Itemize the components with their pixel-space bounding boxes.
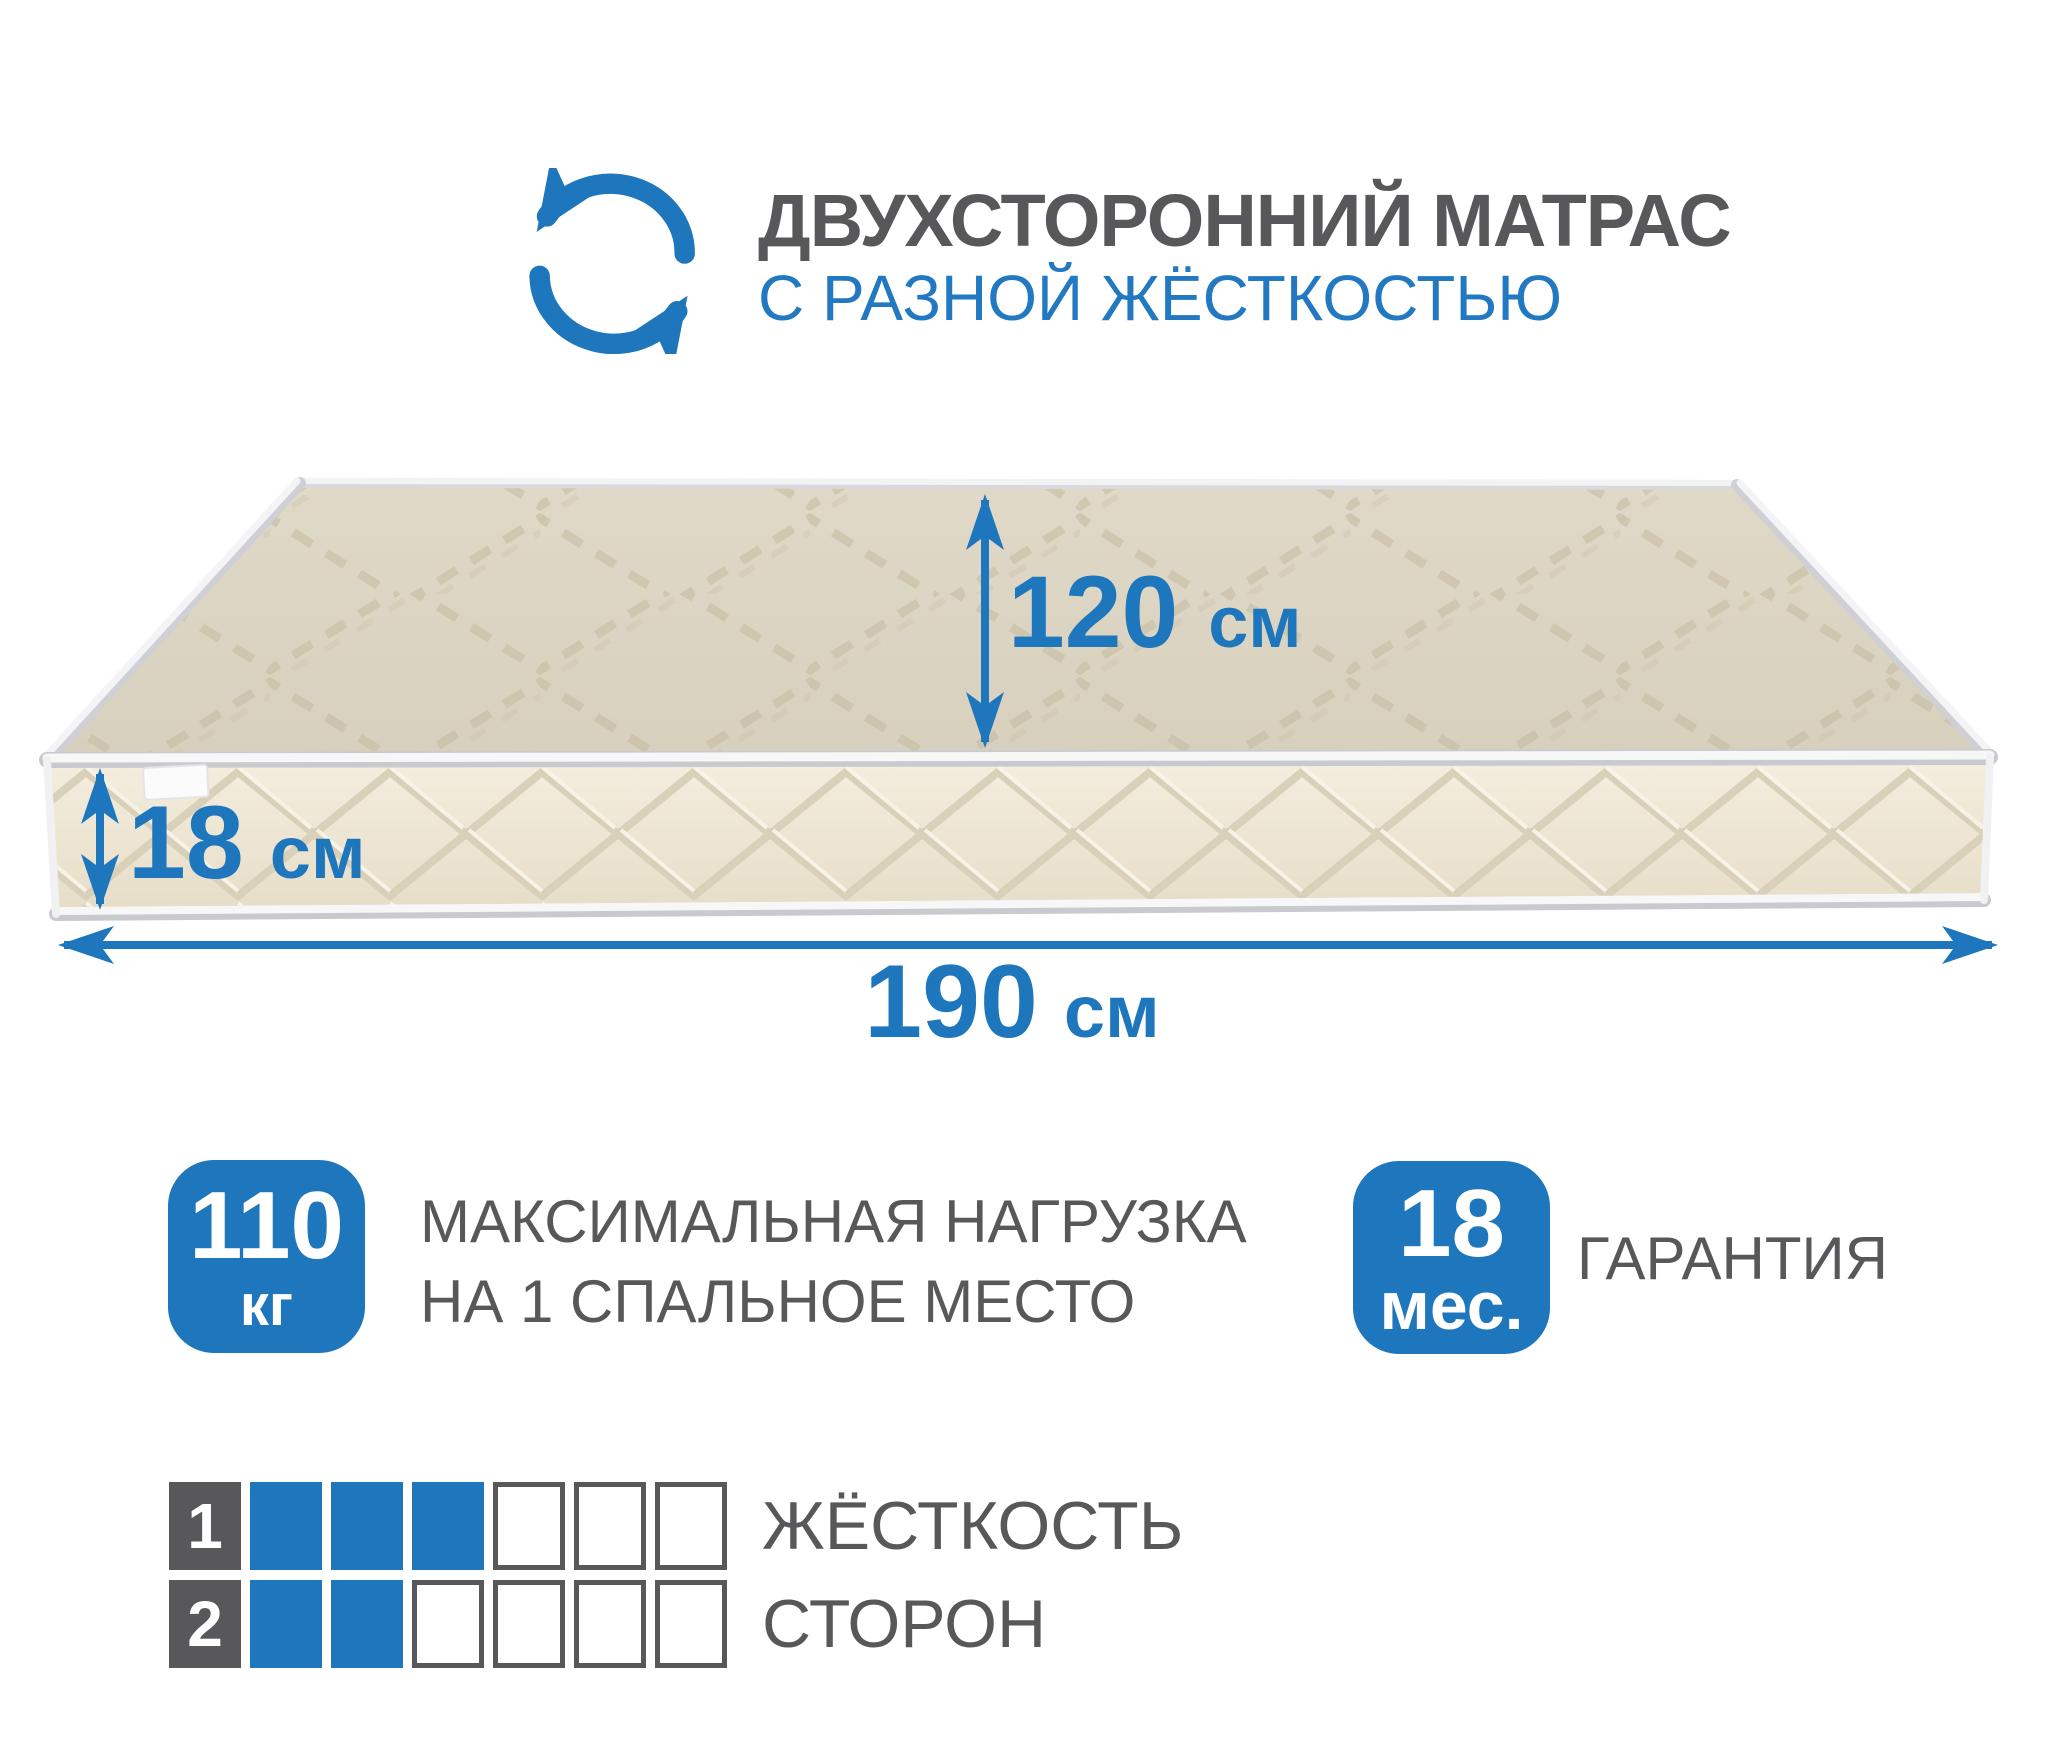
rotate-arrows-icon — [488, 168, 740, 354]
firmness-cell-empty — [493, 1580, 565, 1668]
max-load-value: 110 — [189, 1178, 344, 1274]
header-text: ДВУХСТОРОННИЙ МАТРАС С РАЗНОЙ ЖЁСТКОСТЬЮ — [758, 168, 1731, 334]
firmness-cell-empty — [412, 1580, 484, 1668]
firmness-caption-line2: СТОРОН — [762, 1585, 1046, 1663]
firmness-cell-empty — [493, 1482, 565, 1570]
firmness-row-1-cells — [250, 1482, 727, 1570]
page-title: ДВУХСТОРОННИЙ МАТРАС — [758, 180, 1731, 262]
header: ДВУХСТОРОННИЙ МАТРАС С РАЗНОЙ ЖЁСТКОСТЬЮ — [488, 168, 1731, 354]
warranty-value: 18 — [1398, 1176, 1505, 1272]
firmness-cell-empty — [574, 1482, 646, 1570]
dimension-length: 190см — [64, 944, 1992, 1060]
warranty-badge: 18 мес. — [1353, 1161, 1550, 1354]
mattress-figure: 120см 18см 190см — [0, 430, 2048, 1090]
firmness-cell-empty — [574, 1580, 646, 1668]
firmness-cell-empty — [655, 1482, 727, 1570]
length-label: 190см — [864, 944, 1159, 1060]
firmness-row-2-cells — [250, 1580, 727, 1668]
warranty-caption: ГАРАНТИЯ — [1577, 1226, 1888, 1292]
firmness-row-2-number: 2 — [169, 1580, 241, 1668]
max-load-caption-line1: МАКСИМАЛЬНАЯ НАГРУЗКА — [420, 1182, 1247, 1262]
warranty-unit: мес. — [1380, 1272, 1524, 1340]
firmness-cell-filled — [331, 1482, 403, 1570]
firmness-cell-filled — [412, 1482, 484, 1570]
firmness-scale: 1 ЖЁСТКОСТЬ 2 СТОРОН — [169, 1482, 1183, 1678]
rotate-arc-top — [547, 184, 685, 254]
firmness-row-2: 2 СТОРОН — [169, 1580, 1183, 1668]
firmness-cell-filled — [250, 1580, 322, 1668]
firmness-row-1: 1 ЖЁСТКОСТЬ — [169, 1482, 1183, 1570]
rotate-arc-bottom — [540, 276, 678, 344]
firmness-cell-filled — [250, 1482, 322, 1570]
firmness-row-1-number: 1 — [169, 1482, 241, 1570]
max-load-unit: кг — [240, 1276, 293, 1336]
infographic-page: ДВУХСТОРОННИЙ МАТРАС С РАЗНОЙ ЖЁСТКОСТЬЮ — [0, 0, 2048, 1757]
firmness-caption-line1: ЖЁСТКОСТЬ — [762, 1487, 1183, 1565]
firmness-cell-empty — [655, 1580, 727, 1668]
max-load-caption: МАКСИМАЛЬНАЯ НАГРУЗКА НА 1 СПАЛЬНОЕ МЕСТ… — [420, 1182, 1247, 1342]
page-subtitle: С РАЗНОЙ ЖЁСТКОСТЬЮ — [758, 262, 1731, 334]
max-load-caption-line2: НА 1 СПАЛЬНОЕ МЕСТО — [420, 1262, 1247, 1342]
firmness-cell-filled — [331, 1580, 403, 1668]
max-load-badge: 110 кг — [168, 1160, 365, 1353]
